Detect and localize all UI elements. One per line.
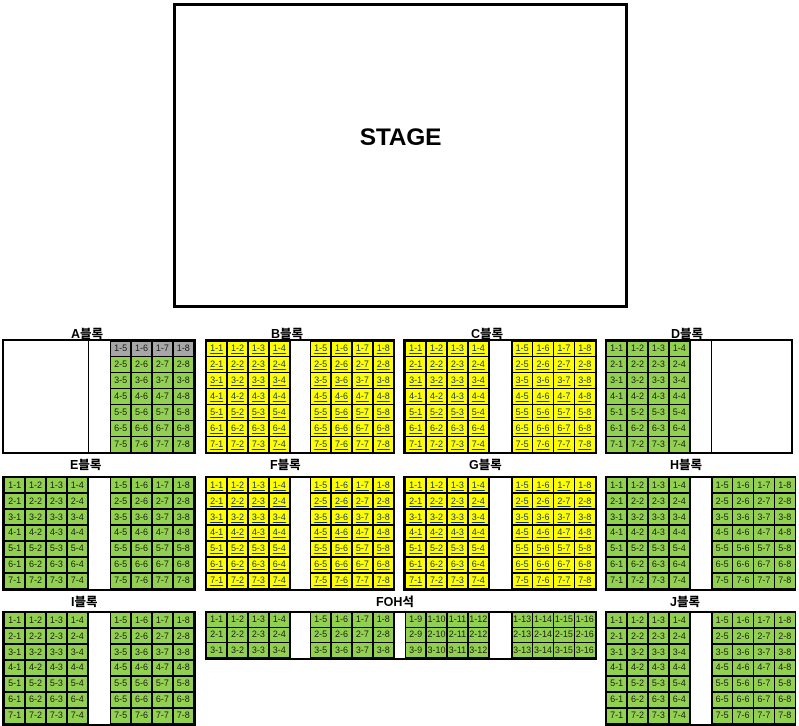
svg-text:G: G: [469, 458, 479, 472]
svg-text:FOH: FOH: [376, 595, 402, 609]
svg-text:J: J: [670, 595, 677, 609]
svg-text:E: E: [70, 458, 78, 472]
svg-text:F: F: [270, 458, 278, 472]
svg-text:I: I: [71, 595, 74, 609]
svg-text:H: H: [670, 458, 679, 472]
